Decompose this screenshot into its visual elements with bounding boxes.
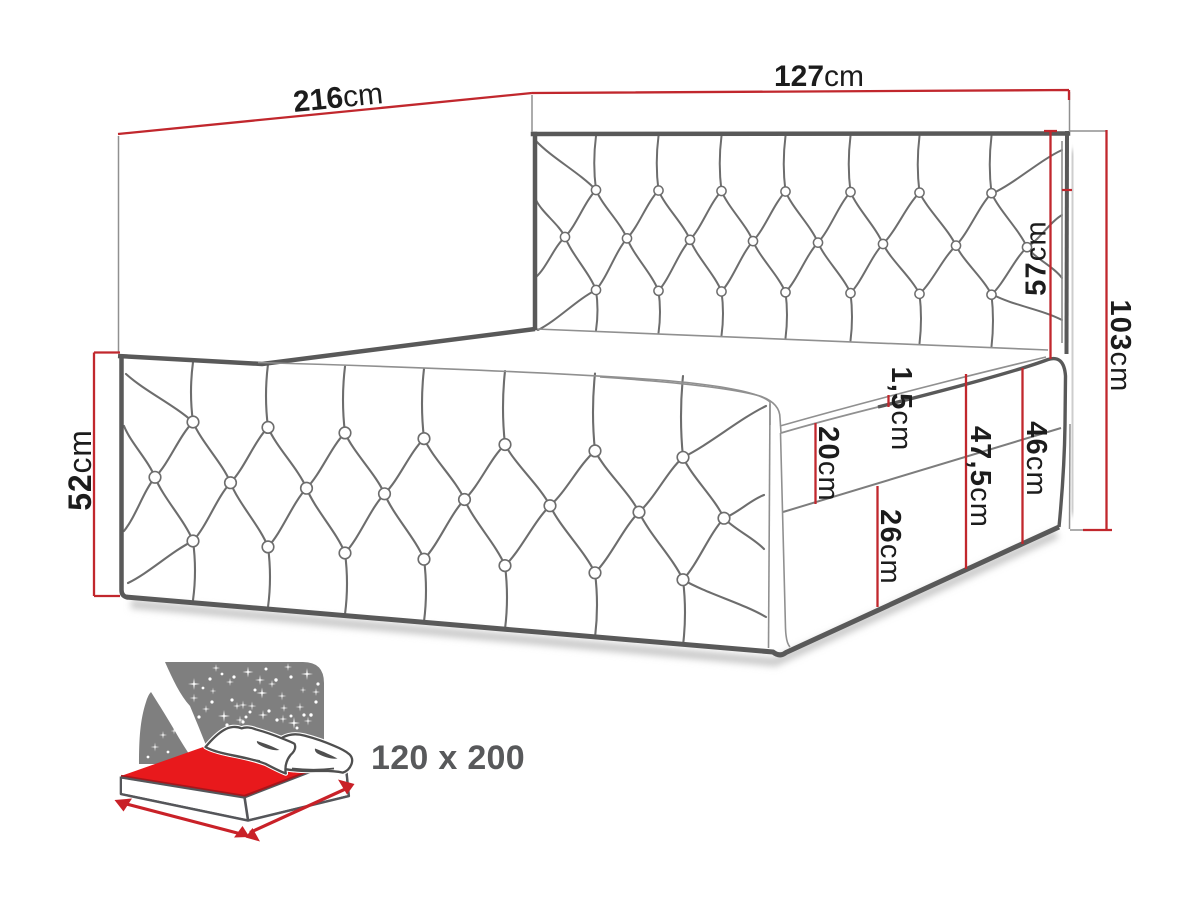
svg-text:20cm: 20cm — [812, 426, 844, 502]
svg-text:52cm: 52cm — [62, 429, 98, 510]
svg-text:120 x 200: 120 x 200 — [371, 739, 525, 777]
svg-text:57cm: 57cm — [1021, 220, 1053, 296]
svg-text:127cm: 127cm — [774, 60, 864, 93]
svg-text:1,5cm: 1,5cm — [885, 367, 917, 452]
svg-text:216cm: 216cm — [292, 77, 385, 119]
svg-text:103cm: 103cm — [1104, 299, 1136, 392]
svg-text:47,5cm: 47,5cm — [964, 426, 996, 528]
svg-text:46cm: 46cm — [1020, 421, 1052, 497]
svg-text:26cm: 26cm — [874, 509, 906, 585]
